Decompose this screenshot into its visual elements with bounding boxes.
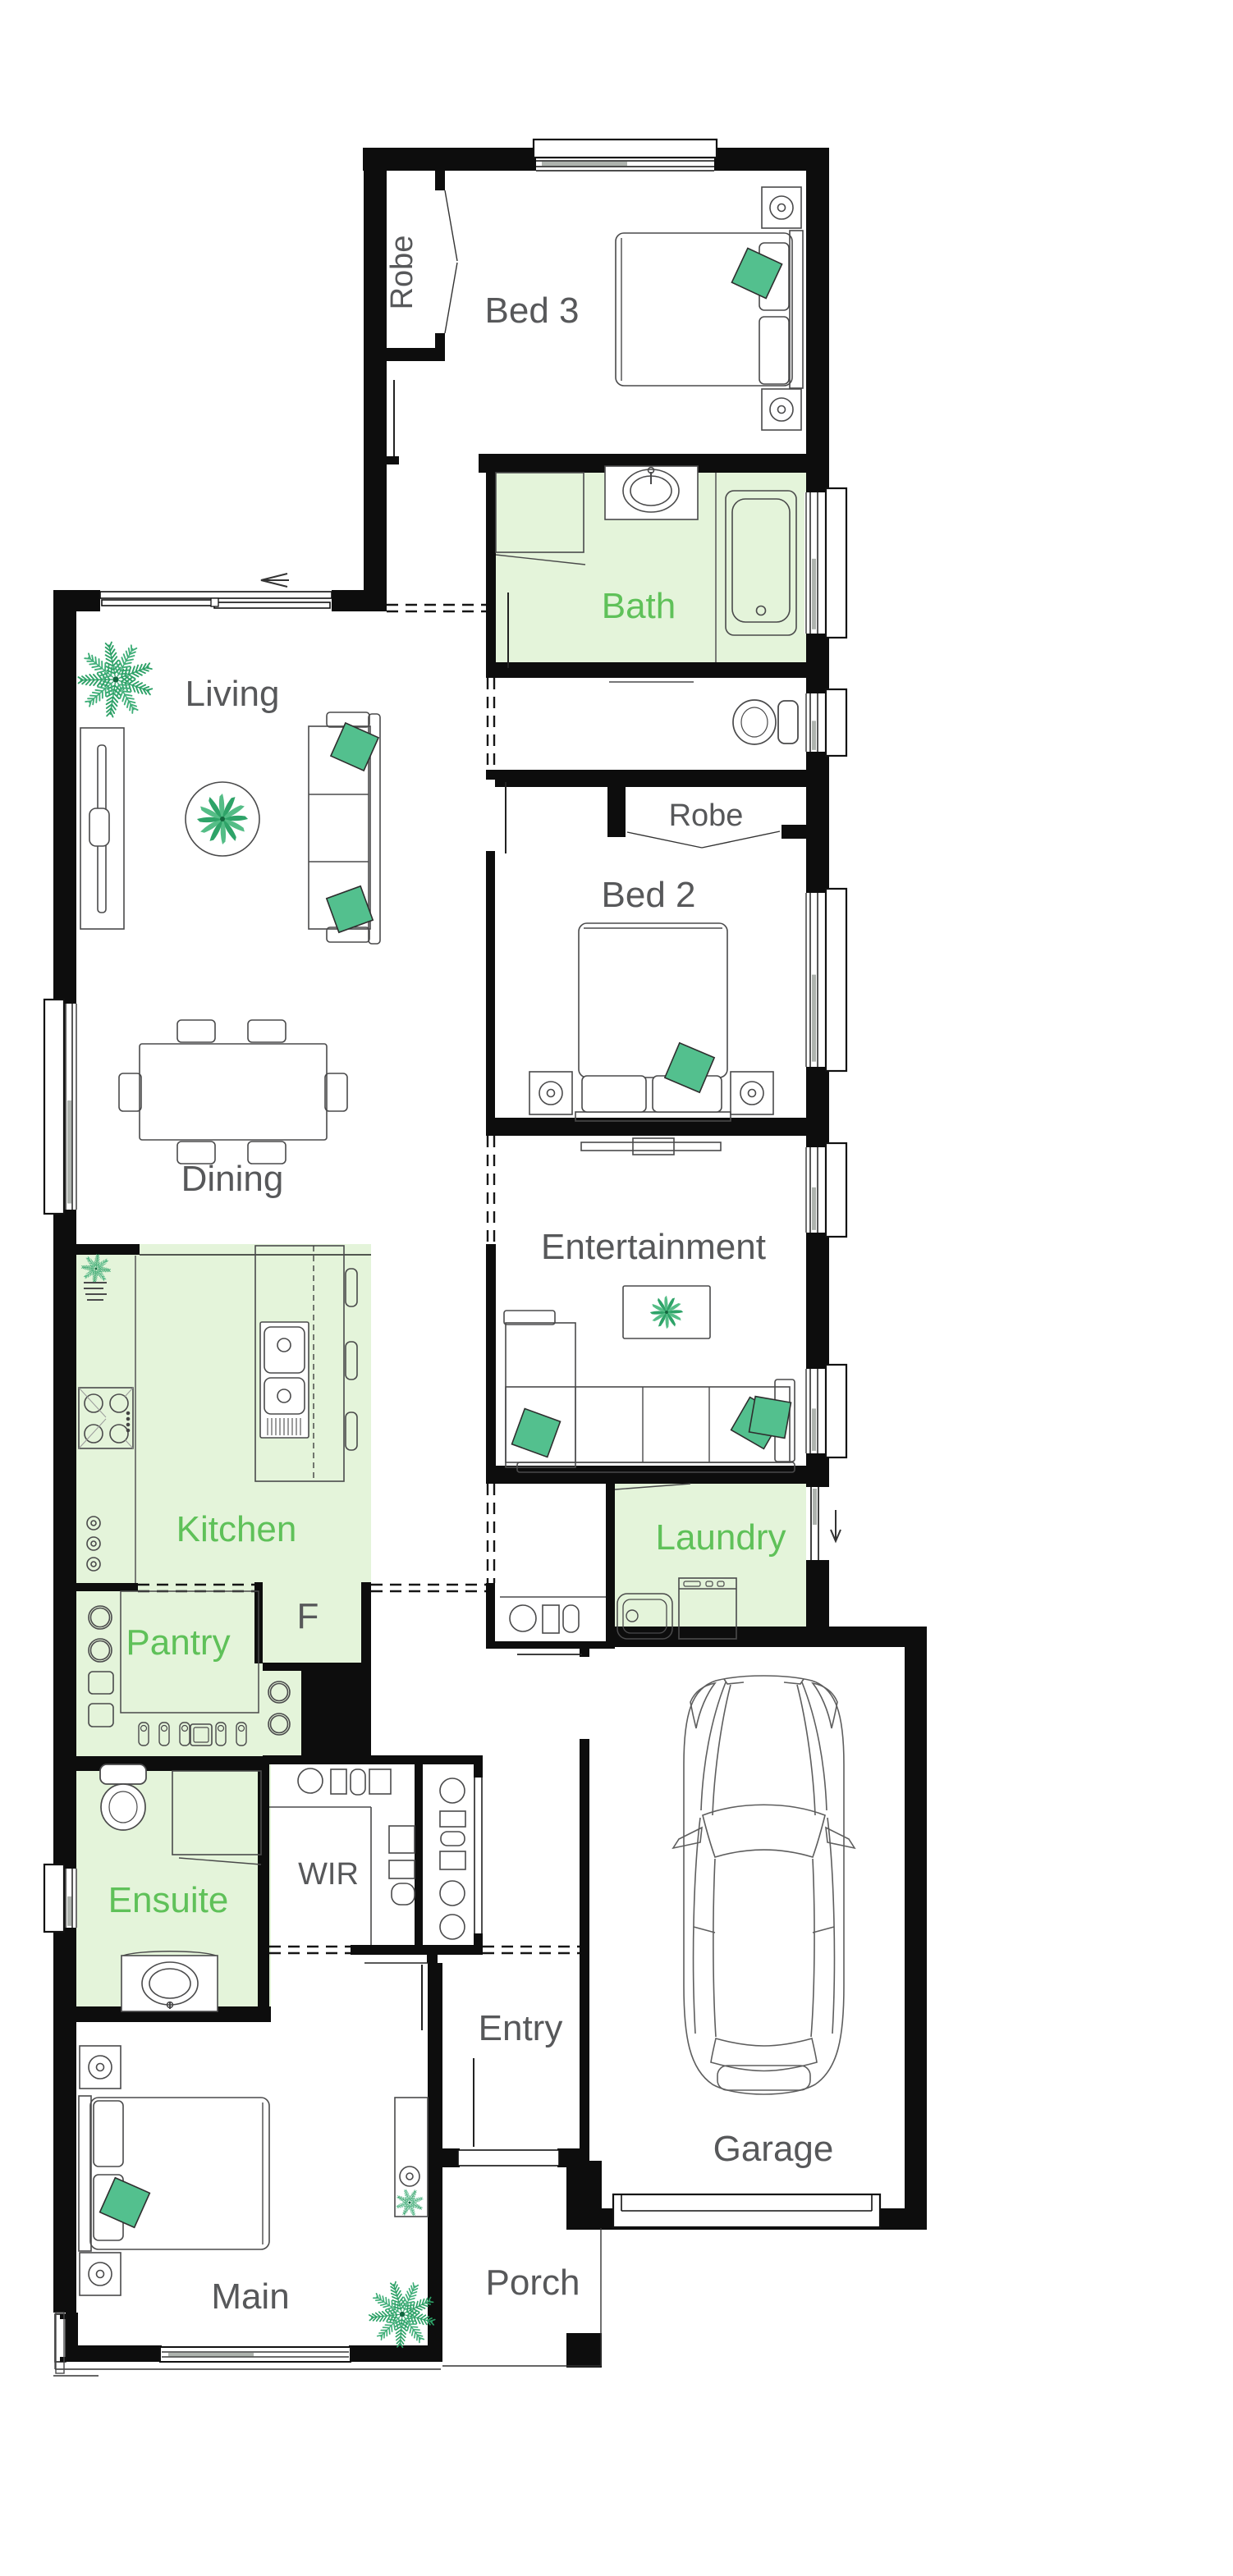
svg-text:Pantry: Pantry [126,1622,230,1663]
svg-text:Robe: Robe [669,798,744,833]
svg-text:Bath: Bath [602,586,676,626]
svg-text:Porch: Porch [486,2263,580,2303]
svg-text:Main: Main [211,2276,289,2317]
svg-text:Entry: Entry [479,2008,563,2048]
svg-text:Robe: Robe [385,236,419,310]
svg-text:Kitchen: Kitchen [176,1509,297,1549]
svg-text:WIR: WIR [298,1857,359,1892]
svg-text:Bed 3: Bed 3 [485,291,580,331]
svg-text:Ensuite: Ensuite [108,1880,229,1920]
svg-text:Laundry: Laundry [655,1517,786,1558]
svg-text:Garage: Garage [713,2129,834,2169]
svg-text:Entertainment: Entertainment [541,1227,766,1267]
svg-text:Bed 2: Bed 2 [602,875,696,915]
svg-text:Living: Living [186,674,280,714]
svg-text:Dining: Dining [181,1159,284,1199]
svg-text:F: F [297,1596,319,1636]
